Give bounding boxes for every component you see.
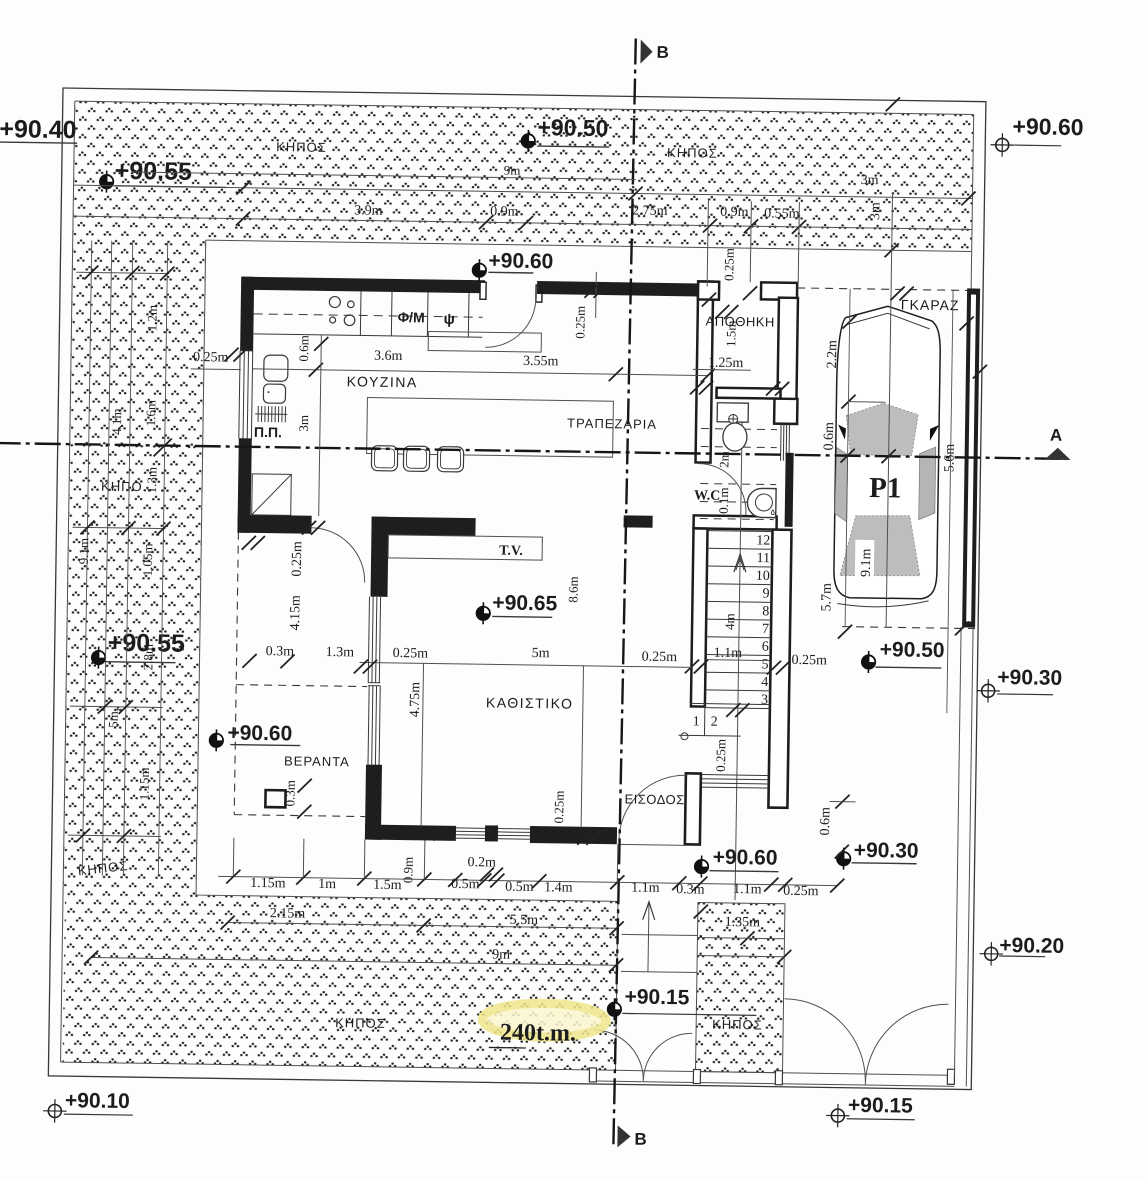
svg-text:0.9m: 0.9m [490,204,519,219]
svg-text:ΚΗΠΟΣ: ΚΗΠΟΣ [276,139,327,155]
svg-text:ΚΗΠΟ: ΚΗΠΟ [101,479,143,495]
svg-text:ΑΠΟΘΗΚΗ: ΑΠΟΘΗΚΗ [706,314,775,330]
svg-text:1m: 1m [318,877,336,892]
svg-text:3.9m: 3.9m [354,203,383,218]
svg-text:0.25m: 0.25m [783,884,819,900]
svg-text:5.5m: 5.5m [510,913,539,928]
svg-text:P1: P1 [869,472,902,504]
svg-text:1.4m: 1.4m [544,880,573,895]
svg-text:0.5m: 0.5m [451,877,480,892]
svg-text:1.35m: 1.35m [725,915,761,931]
svg-text:3m: 3m [861,173,879,188]
svg-text:3m: 3m [296,415,311,432]
svg-text:240t.m.: 240t.m. [500,1020,576,1047]
svg-text:0.25m: 0.25m [572,306,587,339]
svg-text:ψ: ψ [443,311,455,328]
svg-text:+90.65: +90.65 [492,591,557,615]
svg-text:0.25m: 0.25m [290,541,306,577]
svg-text:1.1m: 1.1m [631,881,660,896]
svg-text:0.6m: 0.6m [818,807,833,836]
svg-text:3: 3 [761,693,768,708]
svg-text:Π.Π.: Π.Π. [254,424,282,440]
svg-text:1.1m: 1.1m [733,882,762,897]
svg-text:8.6m: 8.6m [565,576,580,603]
svg-text:2m: 2m [716,451,731,468]
svg-text:2.15m: 2.15m [270,906,306,922]
svg-text:0.25m: 0.25m [642,650,678,666]
svg-text:ΚΑΘΙΣΤΙΚΟ: ΚΑΘΙΣΤΙΚΟ [486,694,574,711]
svg-text:ΚΗΠΟΣ: ΚΗΠΟΣ [712,1017,763,1033]
svg-text:0.25m: 0.25m [551,790,566,823]
svg-text:9.1m: 9.1m [76,538,91,565]
svg-text:1.3m: 1.3m [326,645,355,660]
svg-text:2.75m: 2.75m [632,203,668,219]
svg-text:0.3m: 0.3m [282,780,297,807]
svg-text:1.3m: 1.3m [144,467,159,494]
svg-text:5.7m: 5.7m [819,583,834,612]
svg-text:1.1m: 1.1m [714,646,743,661]
svg-text:+90.60: +90.60 [1012,113,1083,140]
svg-text:+90.10: +90.10 [65,1089,130,1113]
svg-text:+90.15: +90.15 [848,1094,913,1118]
svg-text:+90.60: +90.60 [488,249,553,273]
svg-text:3m: 3m [868,202,883,220]
svg-text:0.25m: 0.25m [193,350,229,366]
svg-text:ΚΗΠΟΣ: ΚΗΠΟΣ [335,1015,386,1031]
svg-text:+90.50: +90.50 [537,114,608,141]
svg-text:1.05m: 1.05m [140,543,155,576]
svg-text:0.1m: 0.1m [716,487,731,514]
svg-text:ΒΕΡΑΝΤΑ: ΒΕΡΑΝΤΑ [284,753,350,769]
svg-text:0.25m: 0.25m [721,248,736,281]
svg-text:4.75m: 4.75m [408,682,424,718]
svg-text:0.25m: 0.25m [791,653,827,669]
svg-text:11: 11 [757,551,771,566]
svg-text:10: 10 [756,569,770,584]
svg-text:0.5m: 0.5m [505,880,534,895]
svg-text:1.25m: 1.25m [708,356,744,372]
svg-text:0.6m: 0.6m [822,422,837,451]
svg-text:0.9m: 0.9m [720,205,749,220]
svg-text:ΕΙΣΟΔΟΣ: ΕΙΣΟΔΟΣ [624,791,684,807]
svg-text:B: B [634,1130,647,1149]
svg-text:0.25m: 0.25m [713,739,728,772]
svg-text:6: 6 [762,640,769,655]
svg-text:0.2m: 0.2m [467,855,496,870]
svg-text:4.15m: 4.15m [288,595,304,631]
svg-text:9m: 9m [504,163,521,178]
svg-text:ΓΚΑΡΑΖ: ΓΚΑΡΑΖ [901,296,960,313]
svg-text:9.1m: 9.1m [859,548,874,577]
svg-text:+90.50: +90.50 [880,638,945,662]
svg-text:3.55m: 3.55m [523,354,559,370]
svg-text:0.55m: 0.55m [764,206,800,222]
svg-text:7: 7 [762,622,769,637]
svg-text:3.6m: 3.6m [374,349,403,364]
svg-text:+90.30: +90.30 [854,839,919,863]
svg-text:+90.30: +90.30 [997,666,1062,690]
svg-text:2: 2 [711,715,718,730]
svg-text:+90.15: +90.15 [624,985,689,1009]
svg-text:9: 9 [762,587,769,602]
svg-text:0.9m: 0.9m [400,857,415,884]
svg-text:A: A [1050,426,1063,445]
svg-text:1.15m: 1.15m [250,876,286,892]
svg-text:B: B [656,43,669,62]
svg-text:+90.60: +90.60 [712,846,777,870]
svg-text:Φ/Μ: Φ/Μ [398,309,425,325]
svg-text:2.8m: 2.8m [140,644,155,671]
svg-text:8: 8 [762,604,769,619]
svg-text:9m: 9m [492,947,510,962]
svg-text:5m: 5m [532,646,550,661]
svg-text:0.6m: 0.6m [296,335,311,362]
svg-text:+90.55: +90.55 [115,157,193,186]
svg-text:12: 12 [756,533,770,548]
svg-text:5m,: 5m, [106,708,121,728]
svg-text:1.5m: 1.5m [723,320,738,347]
svg-text:4.1m: 4.1m [109,408,124,435]
svg-text:0.25m: 0.25m [393,646,429,662]
svg-text:1.6m: 1.6m [143,400,158,427]
svg-text:ΤΡΑΠΕΖΑΡΙΑ: ΤΡΑΠΕΖΑΡΙΑ [567,416,657,432]
svg-text:0.3m: 0.3m [266,644,295,659]
svg-text:1.15m: 1.15m [136,767,151,800]
svg-text:T.V.: T.V. [499,544,523,559]
svg-text:2.2m: 2.2m [825,340,840,369]
svg-text:ΚΟΥΖΙΝΑ: ΚΟΥΖΙΝΑ [347,373,418,390]
svg-text:+90.60: +90.60 [227,722,292,746]
svg-text:4m: 4m [722,613,737,630]
svg-text:4: 4 [761,675,768,690]
svg-text:+90.40: +90.40 [0,115,77,144]
svg-text:ΚΗΠΟΣ: ΚΗΠΟΣ [667,145,718,161]
svg-text:0.3m: 0.3m [676,882,705,897]
svg-text:1: 1 [693,714,700,729]
svg-text:1.2m: 1.2m [144,305,159,332]
svg-text:5: 5 [761,657,768,672]
svg-text:+90.20: +90.20 [999,934,1064,958]
svg-text:1.5m: 1.5m [373,878,402,893]
